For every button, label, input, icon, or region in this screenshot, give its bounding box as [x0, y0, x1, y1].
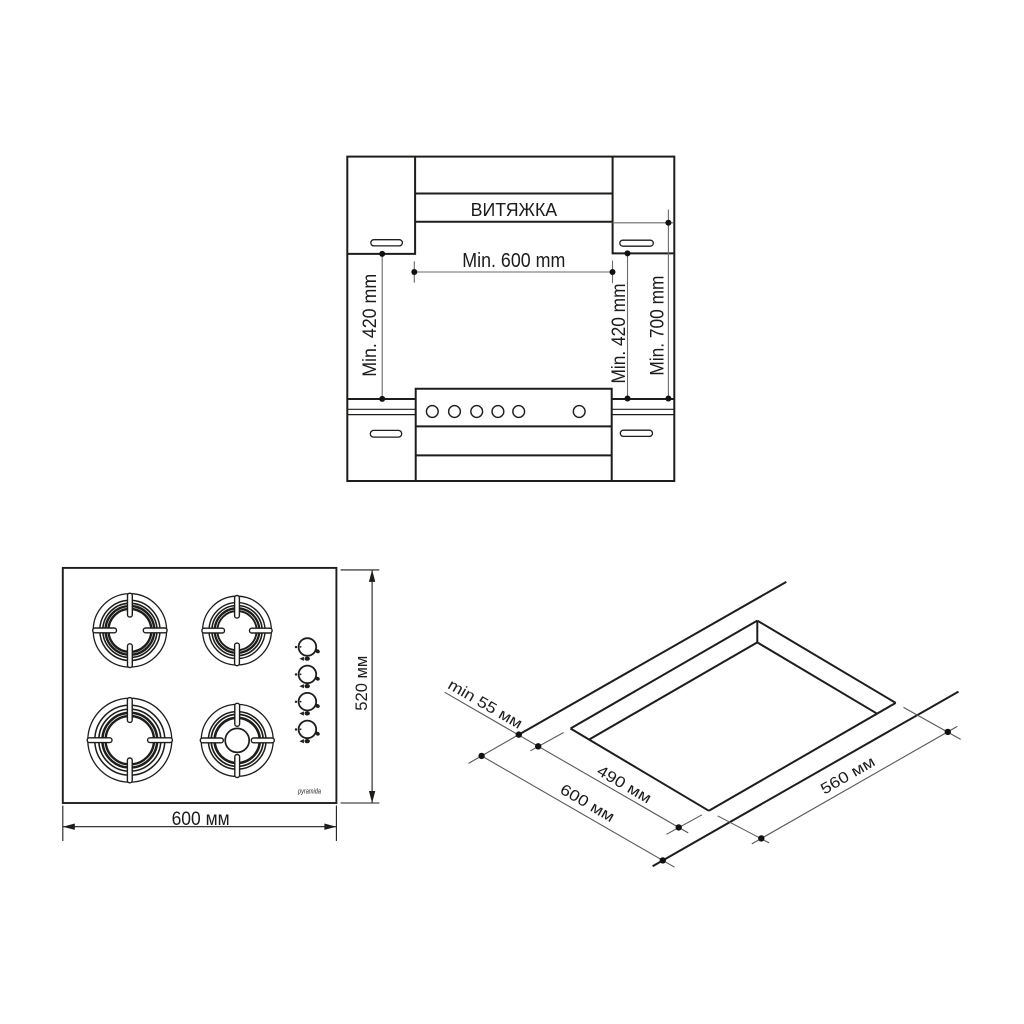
svg-text:Min. 420 mm: Min. 420 mm	[608, 284, 630, 384]
svg-text:Min. 420 mm: Min. 420 mm	[359, 274, 381, 377]
svg-text:520 мм: 520 мм	[352, 656, 371, 711]
svg-text:pyramida: pyramida	[297, 787, 321, 796]
svg-text:Min. 600 mm: Min. 600 mm	[462, 249, 565, 272]
svg-text:600 мм: 600 мм	[172, 808, 230, 830]
svg-text:ВИТЯЖКА: ВИТЯЖКА	[471, 199, 558, 220]
svg-text:Min. 700 mm: Min. 700 mm	[647, 276, 669, 376]
